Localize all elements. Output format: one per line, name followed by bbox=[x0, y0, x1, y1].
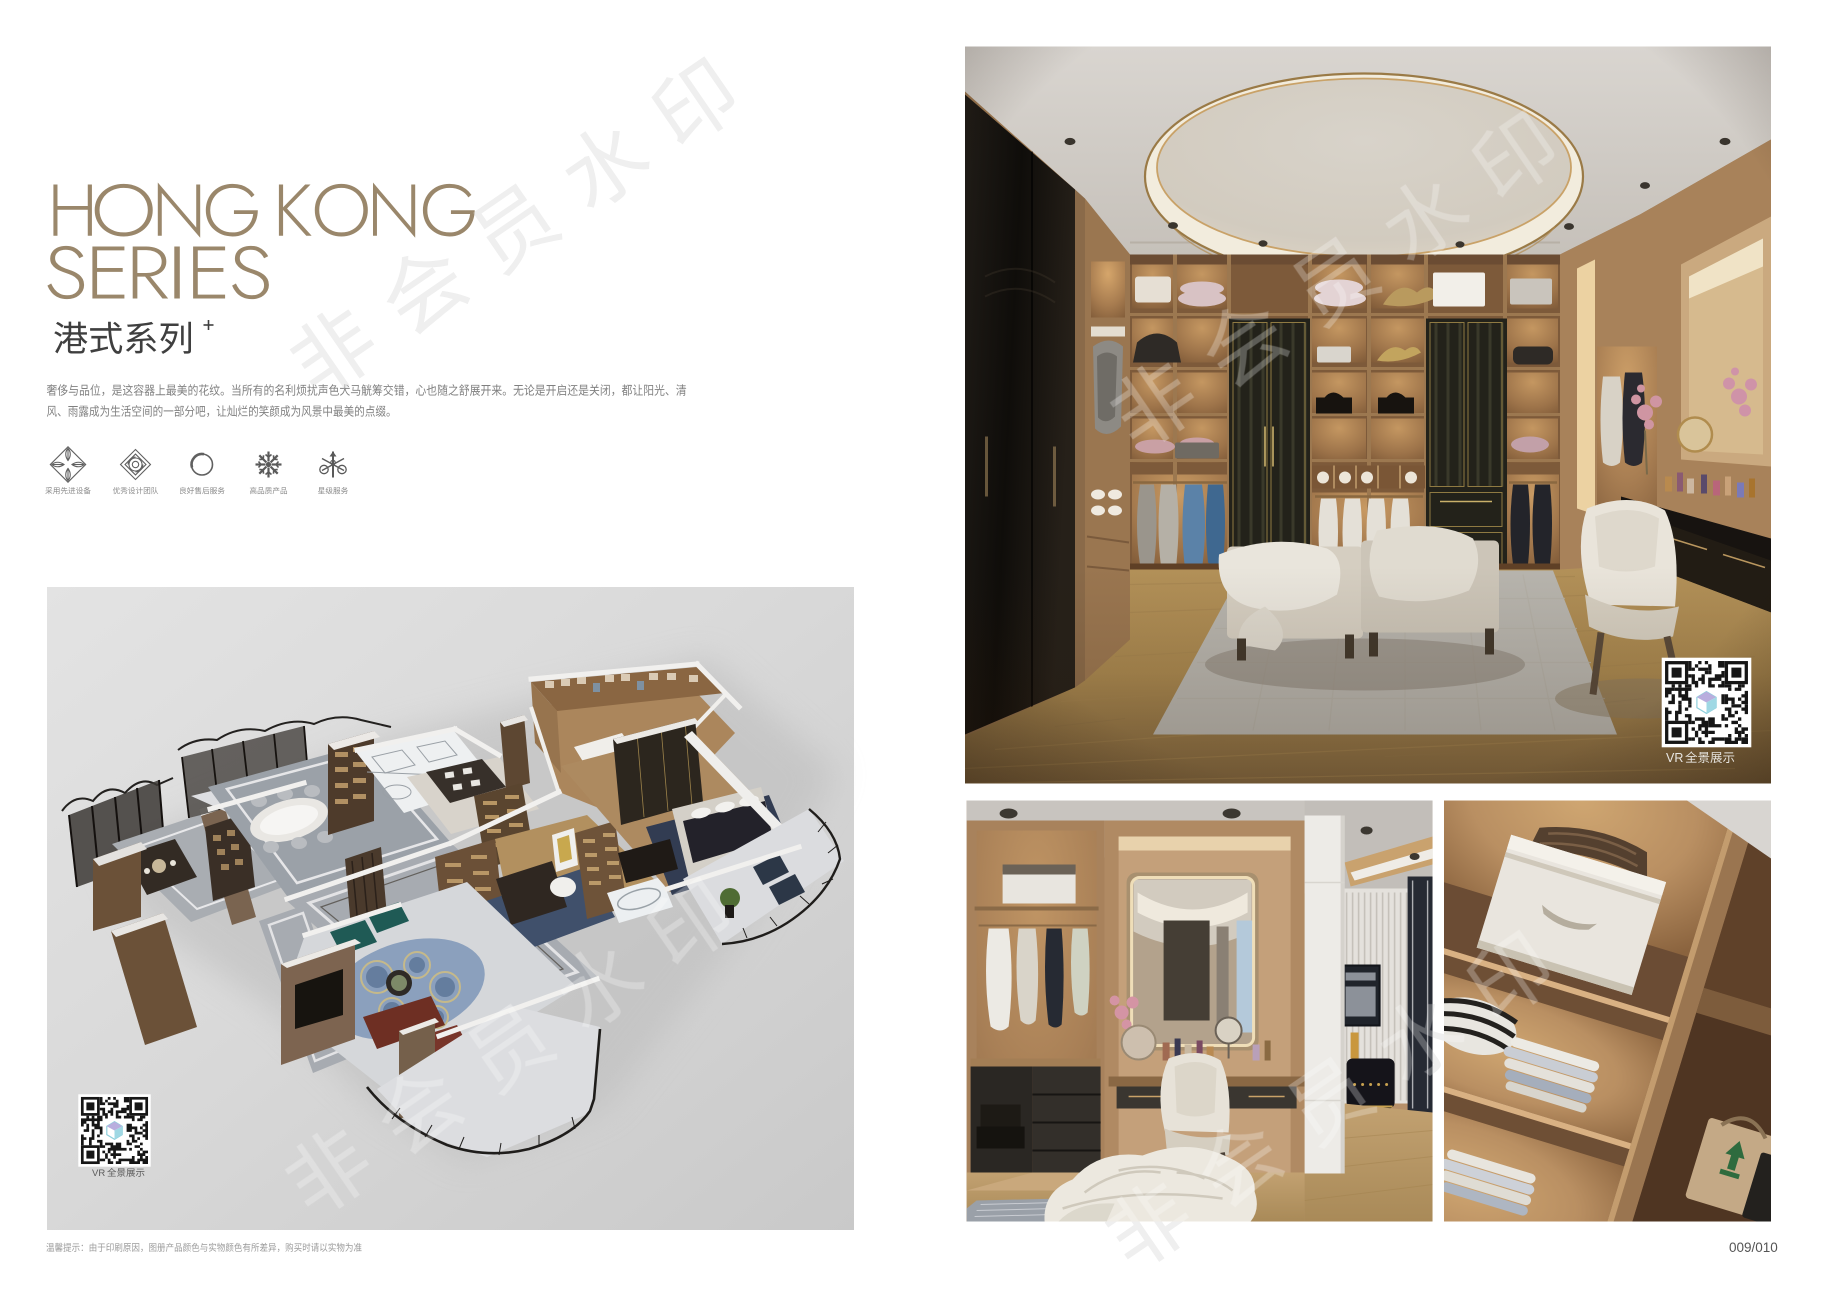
svg-text:VR: VR bbox=[1666, 751, 1683, 765]
svg-text:009/010: 009/010 bbox=[1729, 1240, 1778, 1255]
svg-text:VR: VR bbox=[92, 1168, 105, 1179]
